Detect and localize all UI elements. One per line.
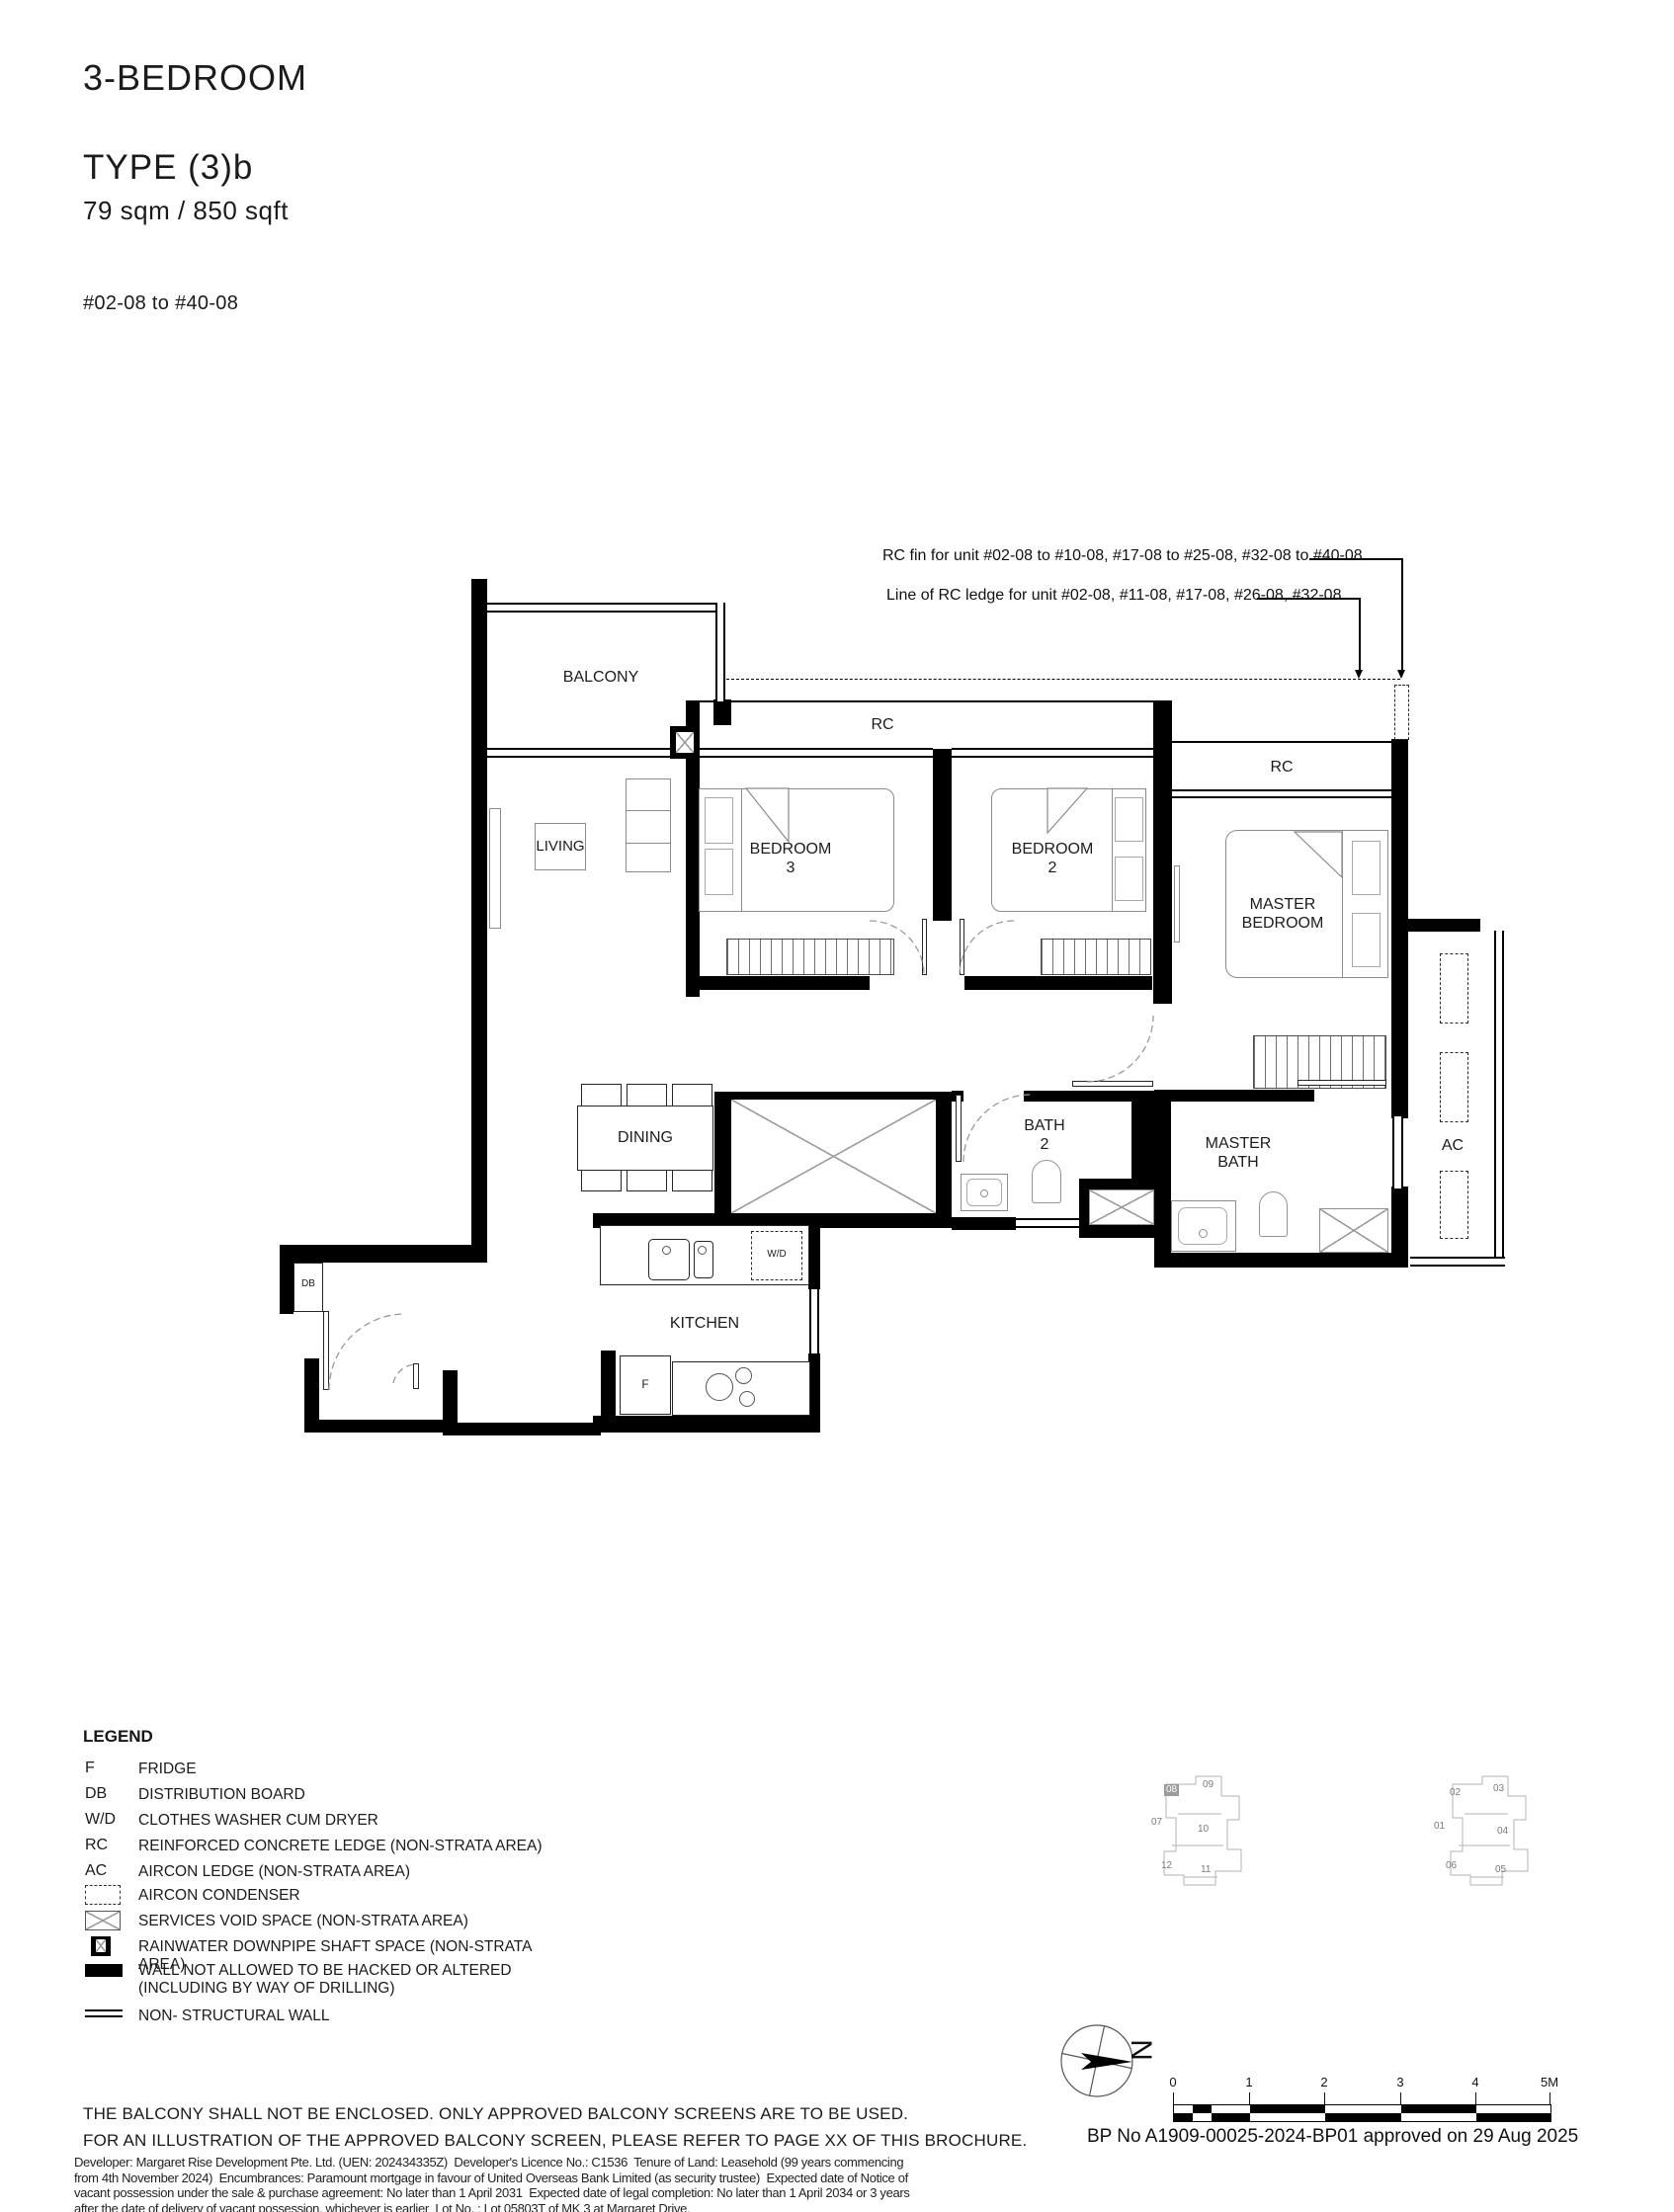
legend-label: REINFORCED CONCRETE LEDGE (NON-STRATA AR… (138, 1838, 573, 1855)
legend-title: LEGEND (83, 1727, 153, 1747)
legend-symbol-db: DB (85, 1785, 107, 1803)
fridge-label: F (620, 1377, 671, 1391)
scale-tick-label: 0 (1169, 2075, 1176, 2089)
room-label-dining: DINING (586, 1128, 705, 1147)
scale-tick-label: 1 (1245, 2075, 1252, 2089)
wd-label: W/D (751, 1249, 802, 1261)
scale-bar-body (1173, 2104, 1551, 2122)
scale-cell (1174, 2113, 1193, 2121)
legend-label: AIRCON LEDGE (NON-STRATA AREA) (138, 1863, 573, 1881)
room-label-line: BEDROOM (1233, 914, 1332, 933)
room-label-bath2: BATH 2 (1010, 1116, 1079, 1154)
rc-label: RC (1252, 758, 1311, 777)
keyplan-unit: 03 (1493, 1784, 1504, 1794)
room-label-line: 2 (1010, 1135, 1079, 1154)
aircon-condenser-icon (85, 1885, 121, 1905)
scale-tick-label: 4 (1471, 2075, 1478, 2089)
room-label-line: MASTER (1233, 895, 1332, 914)
scale-bar: 0 1 2 3 4 5M (1173, 2075, 1558, 2126)
rc-label: RC (853, 715, 912, 734)
keyplan-unit: 02 (1450, 1788, 1461, 1798)
room-label-master-bath: MASTER BATH (1189, 1134, 1288, 1172)
door-arc (329, 1314, 405, 1390)
room-label-line: BEDROOM (746, 840, 835, 859)
keyplan-unit: 12 (1161, 1861, 1172, 1871)
keyplan-unit: 11 (1201, 1865, 1211, 1875)
structural-wall-icon (85, 1964, 123, 1977)
scale-tick-label: 2 (1320, 2075, 1327, 2089)
north-label: N (1124, 2039, 1157, 2061)
legend-symbol-ac: AC (85, 1862, 107, 1880)
fine-print-line: Developer: Margaret Rise Development Pte… (74, 2155, 1043, 2171)
room-label-line: BATH (1010, 1116, 1079, 1135)
keyplan-unit: 01 (1434, 1822, 1445, 1832)
bed-fold (1295, 832, 1342, 877)
scale-cell (1325, 2113, 1401, 2121)
legend-label: FRIDGE (138, 1761, 573, 1778)
db-label: DB (295, 1278, 321, 1290)
floor-plan: RC fin for unit #02-08 to #10-08, #17-08… (0, 0, 1674, 1581)
key-plan-left: 08 09 07 10 12 11 (1141, 1770, 1265, 1917)
room-label-line: MASTER (1189, 1134, 1288, 1153)
balcony-screen-caption: FOR AN ILLUSTRATION OF THE APPROVED BALC… (83, 2131, 1027, 2151)
rainwater-downpipe-icon-void (96, 1939, 106, 1952)
room-label-bedroom3: BEDROOM 3 (746, 840, 835, 877)
ac-label: AC (1428, 1136, 1477, 1155)
legend-symbol-f: F (85, 1760, 95, 1777)
bed-fold (746, 788, 789, 842)
non-structural-wall-icon (85, 2009, 123, 2017)
legend-label: DISTRIBUTION BOARD (138, 1786, 573, 1804)
keyplan-unit: 05 (1495, 1865, 1506, 1875)
scale-cell (1193, 2105, 1212, 2113)
brochure-page: 3-BEDROOM TYPE (3)b 79 sqm / 850 sqft #0… (0, 0, 1674, 2212)
scale-cell (1250, 2105, 1325, 2113)
room-label-line: 2 (1008, 859, 1097, 877)
scale-tick (1324, 2092, 1325, 2104)
scale-tick (1400, 2092, 1401, 2104)
scale-tick (1475, 2092, 1476, 2104)
door-arc (960, 921, 1014, 975)
scale-tick (1549, 2092, 1550, 2104)
keyplan-unit: 07 (1151, 1818, 1162, 1828)
developer-fine-print: Developer: Margaret Rise Development Pte… (74, 2155, 1043, 2212)
fine-print-line: vacant possession under the sale & purch… (74, 2185, 1043, 2201)
room-label-kitchen: KITCHEN (655, 1314, 754, 1333)
scale-tick-label: 3 (1396, 2075, 1403, 2089)
legend-label: NON- STRUCTURAL WALL (138, 2007, 573, 2025)
rainwater-downpipe-icon (91, 1936, 111, 1956)
scale-cell (1476, 2113, 1550, 2121)
room-label-line: BATH (1189, 1153, 1288, 1172)
scale-tick (1173, 2092, 1174, 2104)
room-label-bedroom2: BEDROOM 2 (1008, 840, 1097, 877)
keyplan-unit: 06 (1446, 1861, 1457, 1871)
legend-label: WALL NOT ALLOWED TO BE HACKED OR ALTERED… (138, 1962, 563, 1998)
scale-tick-label: 5M (1541, 2075, 1558, 2089)
keyplan-unit: 04 (1497, 1827, 1508, 1837)
door-arc (870, 921, 924, 975)
keyplan-unit: 10 (1198, 1825, 1209, 1835)
room-label-line: BEDROOM (1008, 840, 1097, 859)
fine-print-line: from 4th November 2024) Encumbrances: Pa… (74, 2171, 1043, 2186)
scale-tick (1249, 2092, 1250, 2104)
door-arc (393, 1364, 415, 1383)
legend-symbol-wd: W/D (85, 1811, 116, 1829)
room-label-living: LIVING (532, 838, 589, 856)
fine-print-line: after the date of delivery of vacant pos… (74, 2201, 1043, 2212)
legend-label: CLOTHES WASHER CUM DRYER (138, 1812, 573, 1830)
key-plan-right: 02 03 01 04 06 05 (1428, 1770, 1551, 1917)
keyplan-unit-highlighted: 08 (1164, 1784, 1179, 1796)
bp-approval: BP No A1909-00025-2024-BP01 approved on … (1087, 2126, 1561, 2148)
door-arc (1087, 1016, 1153, 1082)
room-label-line: 3 (746, 859, 835, 877)
services-void-icon (85, 1911, 121, 1930)
room-label-master-bedroom: MASTER BEDROOM (1233, 895, 1332, 933)
scale-cell (1212, 2113, 1250, 2121)
bed-fold (1047, 788, 1087, 833)
keyplan-unit: 09 (1203, 1780, 1214, 1790)
room-label-balcony: BALCONY (539, 668, 663, 687)
balcony-caption: THE BALCONY SHALL NOT BE ENCLOSED. ONLY … (83, 2104, 908, 2124)
legend: LEGEND F FRIDGE DB DISTRIBUTION BOARD W/… (83, 1727, 676, 2033)
legend-label: AIRCON CONDENSER (138, 1887, 573, 1905)
legend-symbol-rc: RC (85, 1837, 108, 1854)
scale-cell (1401, 2105, 1476, 2113)
legend-label: SERVICES VOID SPACE (NON-STRATA AREA) (138, 1913, 573, 1930)
